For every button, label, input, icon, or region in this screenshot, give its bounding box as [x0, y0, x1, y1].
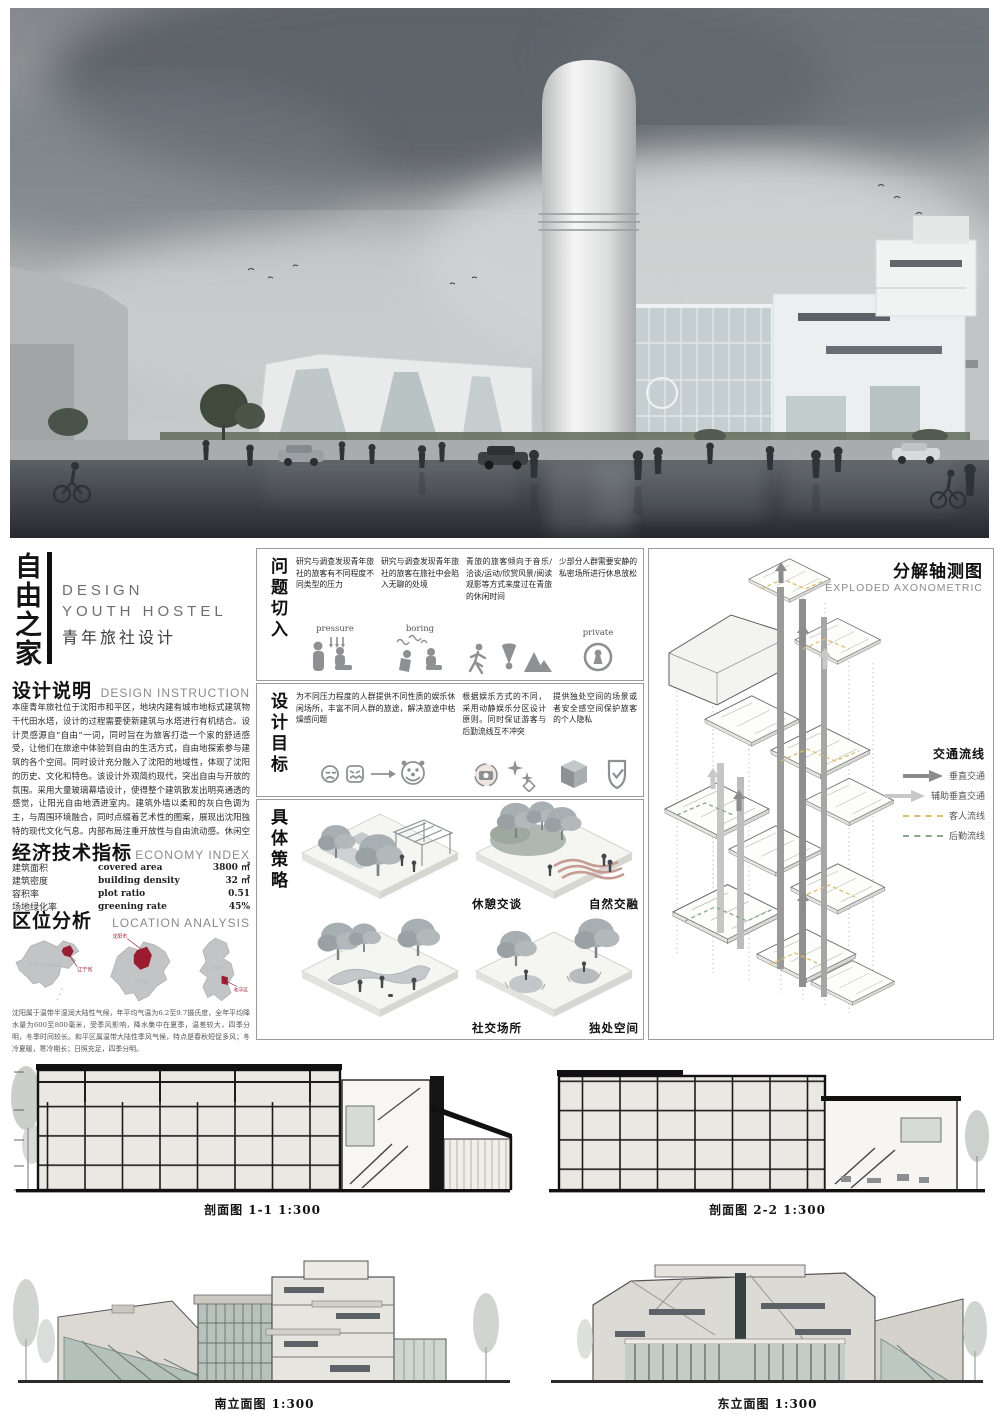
cantilever-box — [876, 240, 976, 316]
economy-row: 容积率 plot ratio 0.51 — [12, 888, 250, 901]
vignette-rest-chat — [302, 814, 458, 899]
main-block — [36, 1064, 342, 1190]
title-divider — [47, 552, 52, 664]
problem-item: 少部分人群需要安静的私密场所进行休息放松 private — [559, 556, 637, 676]
water-tower — [538, 60, 640, 440]
main-mass — [593, 1265, 875, 1381]
location-analysis-en: LOCATION ANALYSIS — [112, 916, 250, 930]
title-line-youth-hostel: YOUTH HOSTEL — [62, 603, 227, 620]
hero-rendering-art — [10, 8, 989, 538]
stair-core — [342, 1076, 444, 1190]
boring-sitting-icon — [389, 634, 451, 676]
presentation-board: 自由之家 DESIGN YOUTH HOSTEL 青年旅社设计 设计说明 DES… — [0, 0, 999, 1415]
section-2-2-caption: 剖面图 2-2 1:300 — [545, 1201, 990, 1218]
design-instruction-cn: 设计说明 — [12, 676, 92, 703]
design-instruction-en: DESIGN INSTRUCTION — [101, 686, 250, 700]
shenyang-label: 沈阳市 — [112, 933, 127, 940]
right-wedge — [875, 1299, 963, 1381]
problem-item: 研究与调查发现青年旅社的旅客有不同程度不同类型的压力 pressure — [296, 556, 374, 676]
title-block: 自由之家 DESIGN YOUTH HOSTEL 青年旅社设计 — [12, 552, 250, 668]
shenyang-map: 和平区 沈阳市 — [188, 932, 252, 1010]
location-analysis-cn: 区位分析 — [12, 906, 92, 933]
dark-arrow-icon — [903, 770, 943, 782]
traffic-legend: 交通流线 垂直交通 辅助垂直交通 客人流线 后勤流线 — [867, 745, 985, 849]
goal-item: 根据娱乐方式的不同，采用动静娱乐分区设计原则。同时保证游客与后勤流线互不冲突 — [462, 691, 546, 792]
heping-highlight — [222, 976, 228, 985]
location-maps: 辽宁省 中华人民共和国 沈阳市 辽宁省 和平区 沈阳市 — [10, 930, 252, 1012]
right-tree — [965, 1110, 989, 1190]
legend-service-flow: 后勤流线 — [867, 829, 985, 842]
design-instruction-heading: 设计说明 DESIGN INSTRUCTION — [12, 676, 250, 703]
exploded-axonometric-drawing — [653, 553, 903, 1033]
caption-solitude: 独处空间 — [589, 1020, 639, 1036]
legend-guest-flow: 客人流线 — [867, 809, 985, 822]
section-1-1-drawing — [10, 1048, 515, 1198]
goals-box: 设计目标 为不同压力程度的人群提供不同性质的娱乐休闲场所，丰富不同人群的旅途，解… — [256, 683, 644, 797]
camera-sparkle-icon — [469, 756, 539, 792]
goal-item: 提供独处空间的场景或者安全感空间保护旅客的个人隐私 — [553, 691, 637, 792]
china-map: 辽宁省 中华人民共和国 — [10, 932, 96, 1010]
strategies-title: 具体策略 — [257, 800, 294, 1039]
shenyang-faint-label: 沈阳市 — [211, 964, 225, 971]
south-elevation-caption: 南立面图 1:300 — [12, 1395, 517, 1412]
goals-title: 设计目标 — [257, 684, 294, 796]
colonnade-glass — [625, 1344, 845, 1381]
economy-row: 建筑密度 building density 32 ㎡ — [12, 875, 250, 888]
yellow-dash-icon — [903, 815, 943, 817]
economy-index-cn: 经济技术指标 — [12, 838, 132, 865]
glass-tower — [194, 1295, 276, 1381]
east-elevation-caption: 东立面图 1:300 — [545, 1395, 990, 1412]
ground-line — [18, 1380, 510, 1383]
economy-index-en: ECONOMY INDEX — [135, 848, 250, 862]
left-trees — [13, 1279, 55, 1381]
traffic-legend-title: 交通流线 — [867, 745, 985, 762]
caption-nature: 自然交融 — [589, 896, 639, 912]
ground-line — [549, 1189, 985, 1192]
green-dash-icon — [903, 835, 943, 837]
cube-shield-icon — [557, 756, 633, 792]
problems-title: 问题切入 — [257, 549, 294, 680]
title-line-design: DESIGN — [62, 582, 227, 599]
problems-box: 问题切入 研究与调查发现青年旅社的旅客有不同程度不同类型的压力 pressure… — [256, 548, 644, 681]
legend-vertical-traffic: 垂直交通 — [867, 769, 985, 782]
sad-to-happy-faces-icon — [317, 754, 435, 792]
design-instruction-body: 本座青年旅社位于沈阳市和平区，地块内建有城市地标式建筑物千代田水塔，设计的过程需… — [12, 701, 250, 835]
east-elevation-drawing — [545, 1243, 990, 1391]
liaoning-label: 辽宁省 — [77, 965, 92, 973]
strategies-box: 具体策略 — [256, 799, 644, 1040]
vignette-solitude — [476, 918, 632, 1017]
vignette-nature — [476, 801, 632, 899]
roof-massing — [669, 615, 781, 705]
caption-social: 社交场所 — [472, 1020, 522, 1036]
running-badminton-mountain-icons — [466, 642, 552, 676]
section-1-1-caption: 剖面图 1-1 1:300 — [10, 1201, 515, 1218]
main-block — [557, 1070, 825, 1190]
legend-aux-vertical-traffic: 辅助垂直交通 — [867, 789, 985, 802]
hero-rendering — [10, 8, 989, 538]
axonometric-box: 分解轴测图 EXPLODED AXONOMETRIC — [648, 548, 994, 1040]
goal-item: 为不同压力程度的人群提供不同性质的娱乐休闲场所，丰富不同人群的旅途，解决旅途中枯… — [296, 691, 455, 792]
pressure-massage-icon — [304, 634, 366, 676]
right-annex — [821, 1096, 961, 1190]
heping-label: 和平区 — [234, 986, 248, 993]
section-2-2-drawing — [545, 1052, 990, 1198]
strategies-grid: 休憩交谈 自然交融 社交场所 独处空间 — [294, 800, 643, 1039]
caption-rest-chat: 休憩交谈 — [472, 896, 522, 912]
ground-line — [551, 1380, 983, 1383]
light-arrow-icon — [885, 790, 925, 802]
location-analysis-heading: 区位分析 LOCATION ANALYSIS — [12, 906, 250, 933]
problem-item: 研究与调查发现青年旅社的旅客在旅社中会陷入无聊的处境 boring — [381, 556, 459, 676]
right-trees — [473, 1293, 499, 1381]
economy-index-heading: 经济技术指标 ECONOMY INDEX — [12, 838, 250, 865]
problem-item: 青旅的旅客倾向于音乐/洽谈/运动/欣赏风景/阅读观影等方式来度过在青旅的休闲时间 — [466, 556, 552, 676]
keyhole-icon — [575, 638, 621, 676]
strategy-vignettes — [294, 800, 638, 1037]
stacked-volumes — [266, 1261, 446, 1381]
project-title-calligraphy: 自由之家 — [12, 552, 39, 668]
liaoning-faint-label: 辽宁省 — [134, 978, 148, 985]
vignette-social — [302, 919, 458, 1017]
title-line-cn: 青年旅社设计 — [62, 624, 227, 648]
economy-row: 建筑面积 covered area 3800 ㎡ — [12, 862, 250, 875]
liaoning-map: 沈阳市 辽宁省 — [101, 932, 183, 1010]
south-elevation-drawing — [12, 1243, 517, 1391]
ground-line — [16, 1189, 510, 1192]
